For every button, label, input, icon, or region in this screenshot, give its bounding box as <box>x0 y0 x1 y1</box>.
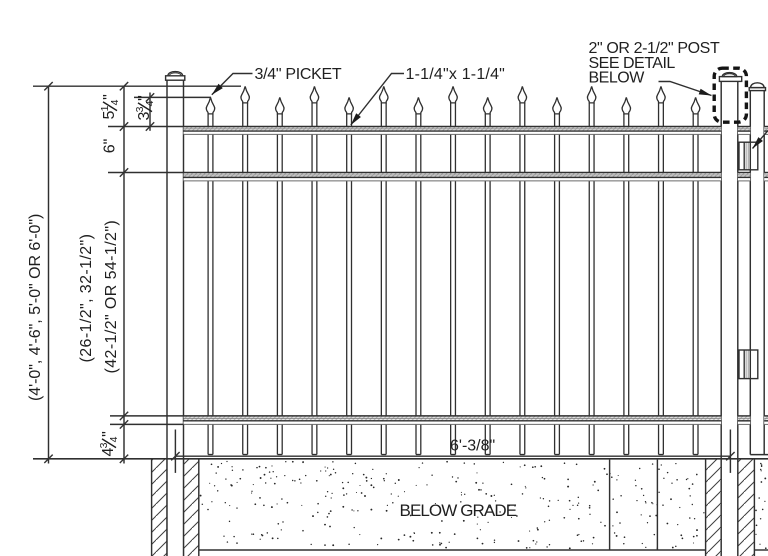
svg-text:(4'-0", 4'-6", 5'-0" OR 6'-0"): (4'-0", 4'-6", 5'-0" OR 6'-0") <box>27 214 44 401</box>
svg-text:6": 6" <box>101 139 118 154</box>
svg-text:3/4" PICKET: 3/4" PICKET <box>255 66 342 83</box>
svg-text:": " <box>101 94 118 100</box>
svg-text:(26-1/2", 32-1/2"): (26-1/2", 32-1/2") <box>78 234 95 363</box>
svg-text:BELOW GRADE: BELOW GRADE <box>400 501 517 520</box>
svg-text:1-1/4"x 1-1/4": 1-1/4"x 1-1/4" <box>406 66 506 83</box>
svg-text:6'-3/8": 6'-3/8" <box>450 438 495 455</box>
svg-text:BELOW: BELOW <box>589 70 646 87</box>
svg-text:(42-1/2" OR 54-1/2"): (42-1/2" OR 54-1/2") <box>103 220 120 374</box>
svg-text:": " <box>100 431 117 437</box>
svg-text:": " <box>136 95 153 101</box>
